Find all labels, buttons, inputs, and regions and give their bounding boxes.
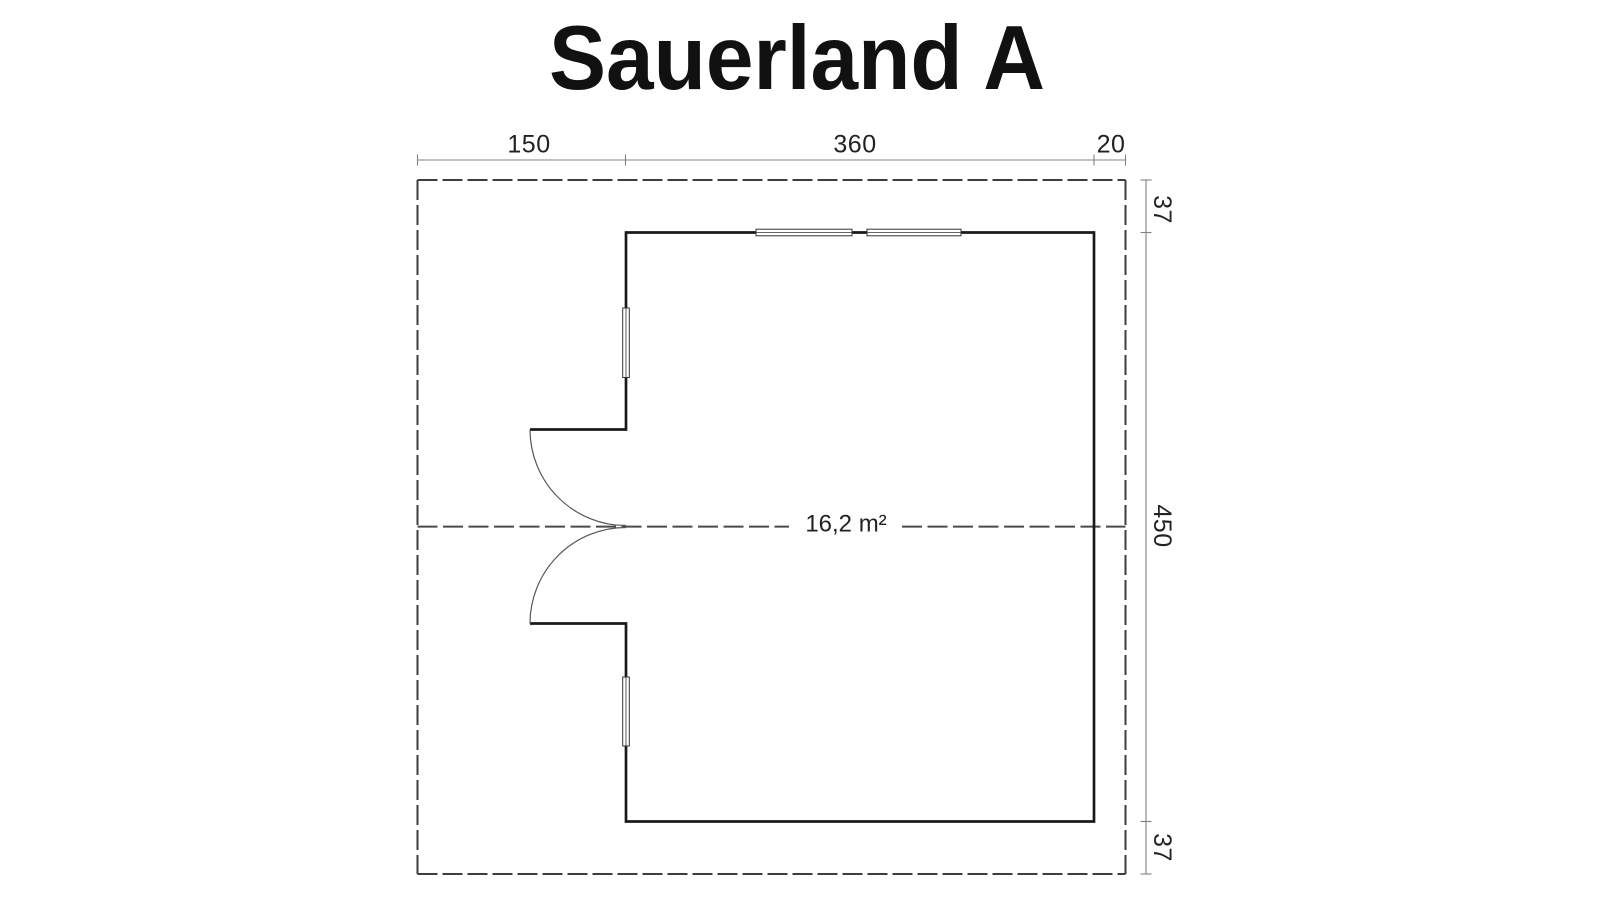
svg-text:37: 37 <box>1148 833 1176 862</box>
svg-text:20: 20 <box>1097 131 1126 159</box>
svg-text:450: 450 <box>1148 504 1176 547</box>
svg-text:37: 37 <box>1148 195 1176 224</box>
svg-text:150: 150 <box>507 131 550 159</box>
svg-text:360: 360 <box>833 131 876 159</box>
svg-text:Sauerland A: Sauerland A <box>549 8 1045 109</box>
svg-text:16,2 m²: 16,2 m² <box>805 511 886 538</box>
